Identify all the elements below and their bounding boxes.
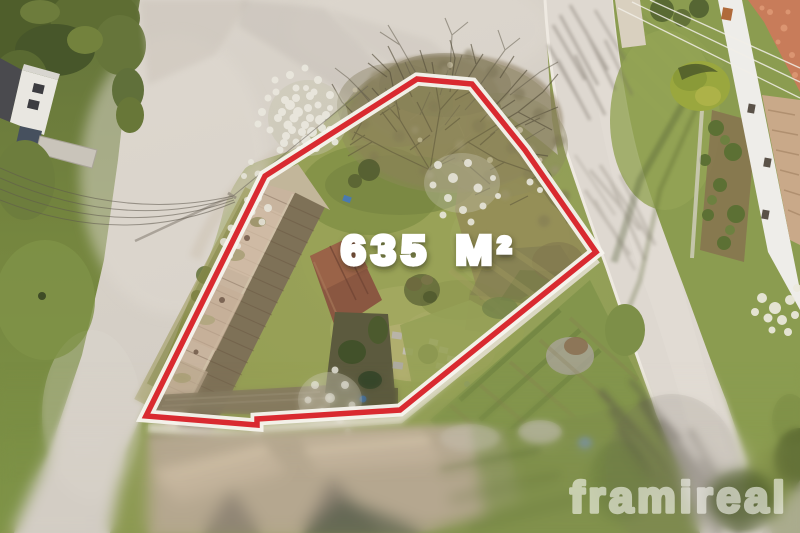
svg-text:635 M2: 635 M2 (341, 227, 511, 273)
svg-text:framireal: framireal (570, 474, 788, 522)
